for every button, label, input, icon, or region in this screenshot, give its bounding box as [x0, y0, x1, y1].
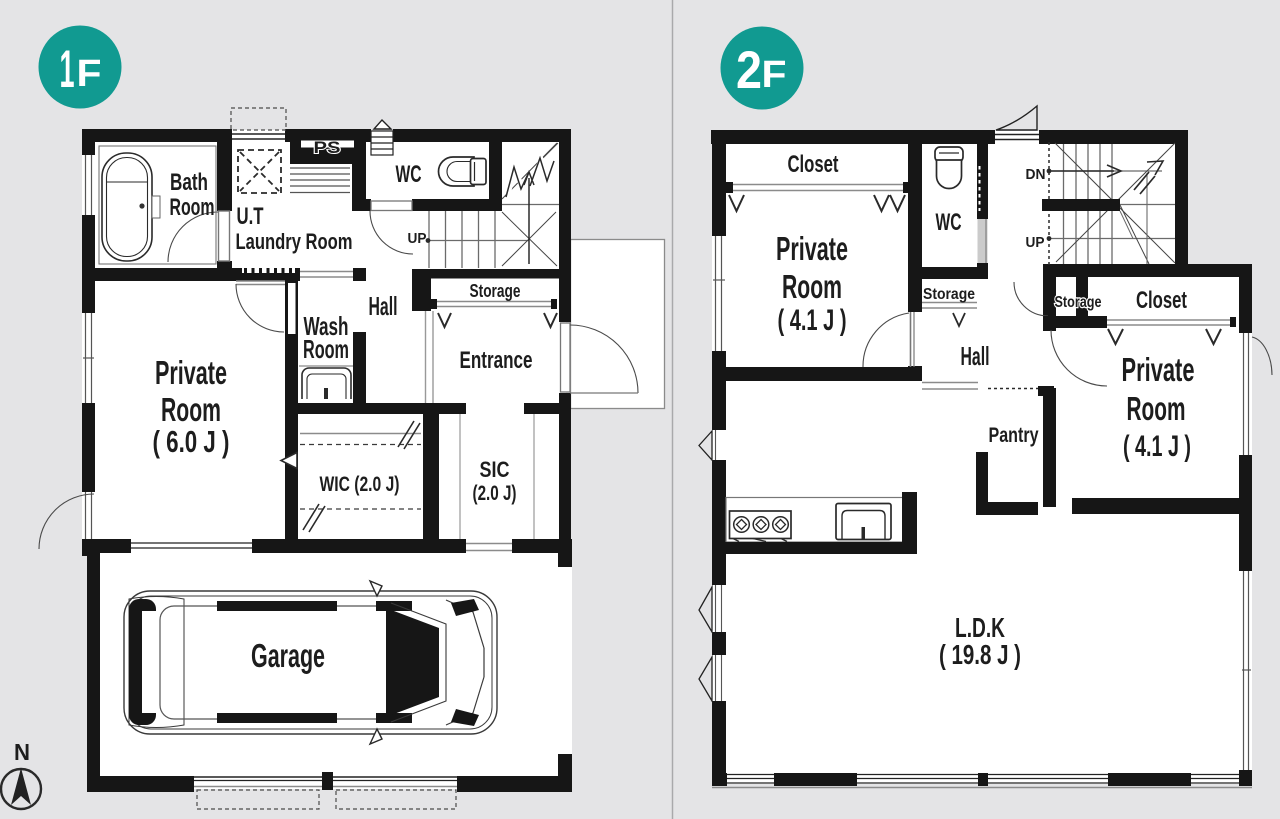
- svg-text:Room: Room: [303, 334, 349, 364]
- svg-text:Room: Room: [161, 391, 221, 428]
- svg-text:Room: Room: [1127, 390, 1186, 427]
- svg-text:F: F: [77, 53, 102, 95]
- svg-text:Private: Private: [776, 230, 848, 267]
- svg-text:Bath: Bath: [170, 169, 208, 196]
- svg-text:WIC (2.0 J): WIC (2.0 J): [320, 473, 400, 496]
- svg-text:Closet: Closet: [1136, 287, 1187, 314]
- svg-text:( 19.8 J ): ( 19.8 J ): [939, 639, 1021, 670]
- svg-text:UP: UP: [1026, 234, 1045, 251]
- svg-text:Storage: Storage: [470, 281, 521, 301]
- svg-text:Hall: Hall: [961, 341, 990, 371]
- svg-text:F: F: [762, 54, 787, 96]
- svg-text:Closet: Closet: [788, 151, 839, 178]
- svg-text:(2.0 J): (2.0 J): [473, 482, 517, 505]
- svg-text:U.T: U.T: [237, 203, 264, 230]
- svg-text:N: N: [14, 739, 30, 765]
- svg-text:( 6.0 J ): ( 6.0 J ): [153, 424, 230, 459]
- svg-text:Laundry Room: Laundry Room: [236, 229, 353, 254]
- svg-text:Hall: Hall: [369, 291, 398, 321]
- svg-text:( 4.1 J ): ( 4.1 J ): [778, 304, 847, 337]
- svg-text:Private: Private: [1122, 351, 1195, 388]
- svg-text:2: 2: [736, 41, 762, 100]
- svg-text:WC: WC: [936, 209, 962, 236]
- svg-text:( 4.1 J ): ( 4.1 J ): [1123, 430, 1191, 463]
- svg-text:Room: Room: [782, 268, 842, 305]
- svg-text:WC: WC: [396, 161, 422, 188]
- svg-text:Private: Private: [155, 354, 227, 391]
- svg-text:1: 1: [60, 40, 75, 99]
- svg-text:SIC: SIC: [480, 457, 510, 482]
- svg-text:Entrance: Entrance: [460, 347, 533, 374]
- svg-text:PS: PS: [314, 138, 341, 157]
- svg-text:UP: UP: [408, 230, 427, 247]
- svg-text:Storage: Storage: [1055, 294, 1102, 311]
- svg-text:DN: DN: [1026, 166, 1046, 183]
- svg-text:Room: Room: [170, 194, 215, 221]
- svg-text:Storage: Storage: [923, 286, 975, 303]
- svg-text:Pantry: Pantry: [989, 424, 1039, 447]
- svg-text:Garage: Garage: [251, 637, 325, 674]
